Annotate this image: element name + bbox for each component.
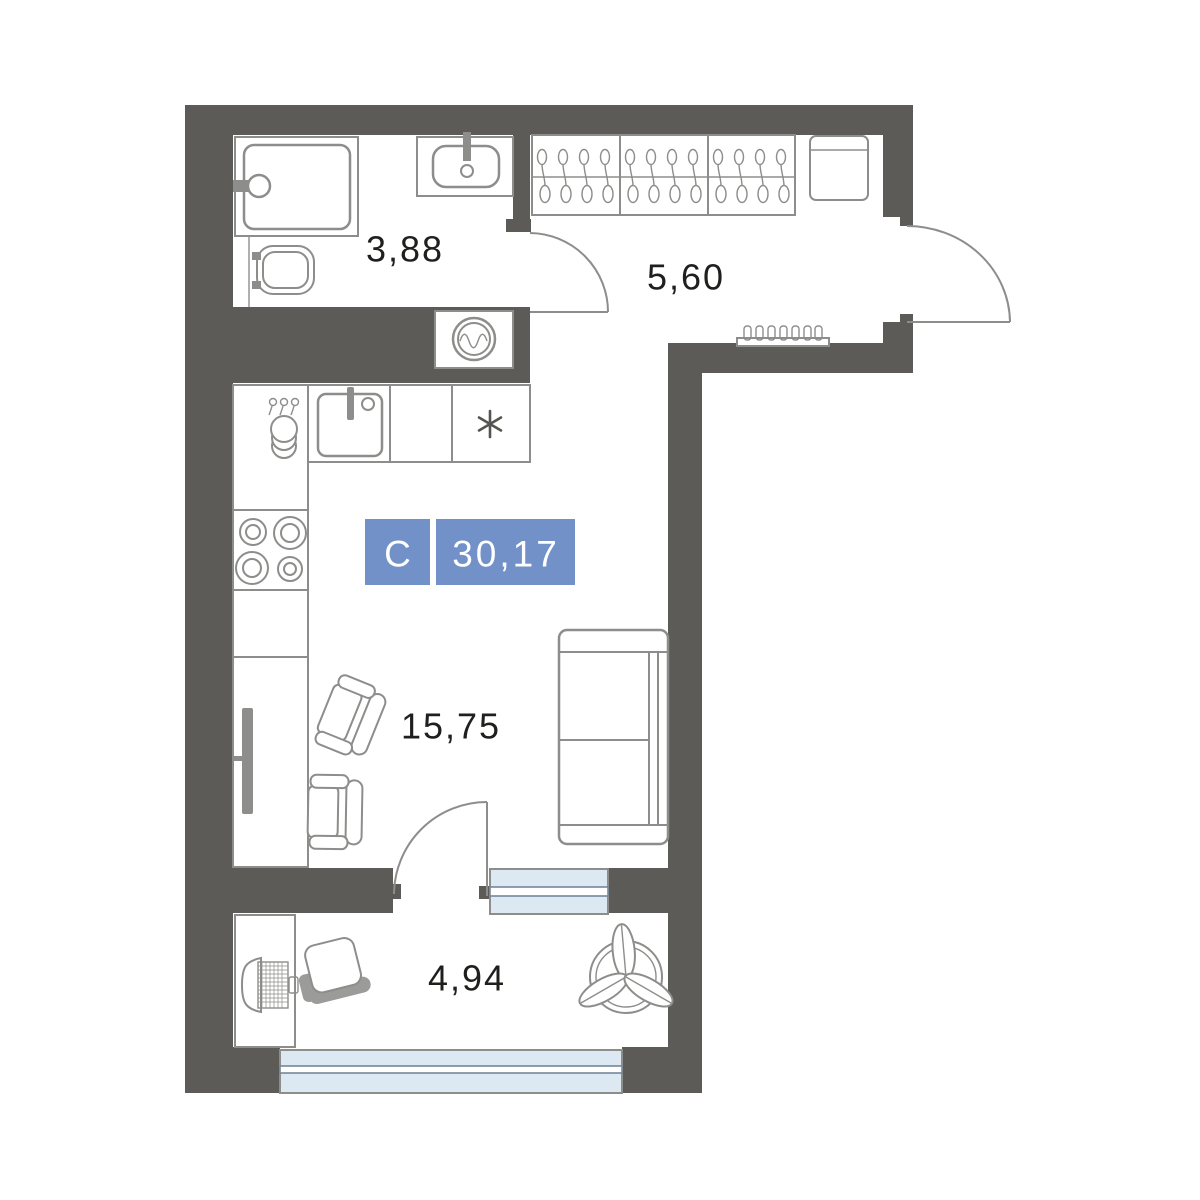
wall-right-lower	[668, 343, 702, 1093]
living-fixtures	[233, 630, 668, 867]
wardrobe-hangers-icon	[532, 135, 795, 215]
entrance-jamb-top	[900, 217, 913, 226]
washing-machine-icon	[435, 311, 513, 368]
door-balcony	[394, 802, 487, 896]
desk-icon	[235, 915, 295, 1047]
wall-balcony-left	[233, 868, 393, 913]
floor-plan-svg: 3,88 5,60 15,75 4,94 С 30,17	[0, 0, 1200, 1200]
badge-type-label: С	[384, 534, 414, 575]
window-balcony-outer	[280, 1050, 622, 1093]
door-bathroom	[530, 233, 608, 312]
wall-left	[185, 105, 233, 1093]
office-chair-icon	[291, 934, 372, 1007]
room-label-hallway: 5,60	[647, 257, 725, 298]
bed-icon	[559, 630, 668, 844]
plant-icon	[575, 923, 678, 1013]
washbasin-icon	[417, 132, 513, 196]
kitchen-sink-icon	[318, 387, 382, 456]
radiator-icon	[737, 326, 829, 346]
wall-balcony-outer-left	[233, 1047, 280, 1093]
toilet-icon	[252, 246, 314, 294]
window-living-balcony	[490, 869, 608, 914]
door-entrance	[907, 226, 1010, 322]
floor-plan: 3,88 5,60 15,75 4,94 С 30,17	[0, 0, 1200, 1200]
wall-balcony-outer-right	[622, 1047, 702, 1093]
entrance-jamb-bottom	[900, 314, 913, 322]
bathroom-door-jamb	[506, 219, 531, 232]
room-label-balcony: 4,94	[428, 958, 506, 999]
room-label-living: 15,75	[401, 706, 501, 747]
door-swing-icon	[907, 226, 1010, 322]
wall-top	[185, 105, 913, 135]
wall-right-upper	[883, 135, 913, 217]
armchair-icon	[307, 775, 362, 850]
door-swing-icon	[530, 233, 608, 312]
cabinet-icon	[810, 136, 868, 200]
hallway-fixtures	[532, 135, 868, 346]
badge-area-value: 30,17	[452, 534, 560, 575]
wall-bathroom-hall-divider	[513, 135, 530, 232]
door-swing-icon	[394, 802, 487, 894]
room-label-bathroom: 3,88	[366, 229, 444, 270]
wall-balcony-right	[608, 868, 702, 913]
wall-hallway-bottom	[668, 343, 913, 373]
armchair-icon	[312, 673, 390, 762]
area-badge: С 30,17	[365, 519, 575, 585]
